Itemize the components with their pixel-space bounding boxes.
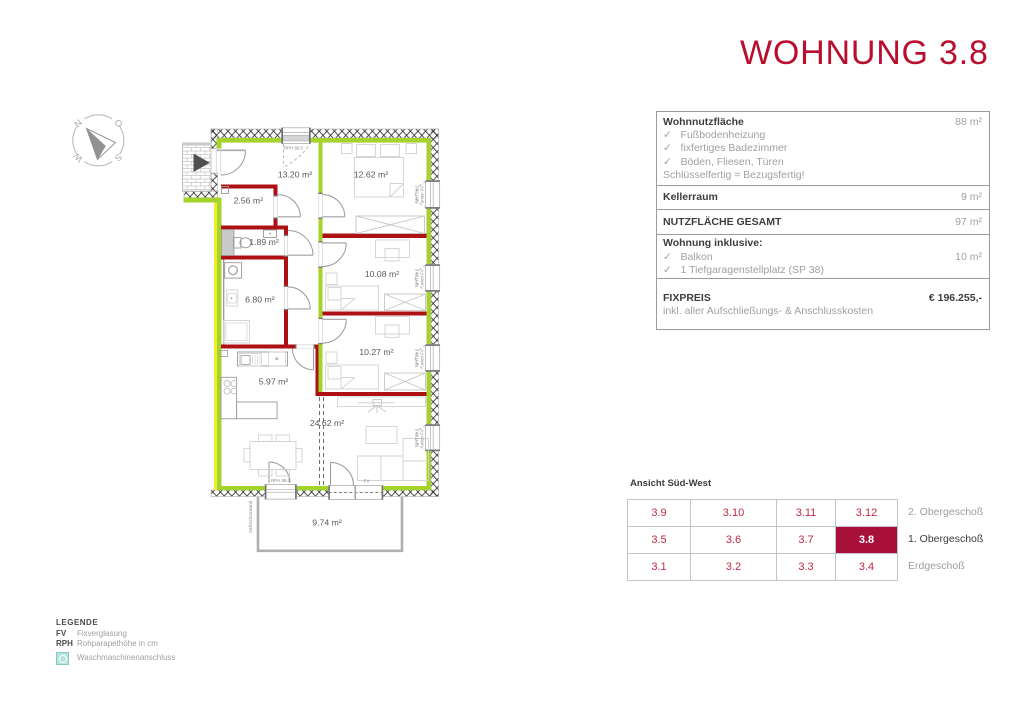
svg-text:RPH 89.5: RPH 89.5 bbox=[284, 146, 304, 151]
svg-text:12.62 m²: 12.62 m² bbox=[354, 170, 388, 180]
svg-text:FV: FV bbox=[364, 479, 370, 484]
svg-text:unten FV: unten FV bbox=[420, 186, 425, 203]
svg-text:9.74 m²: 9.74 m² bbox=[312, 518, 342, 528]
svg-text:24.62 m²: 24.62 m² bbox=[310, 418, 344, 428]
svg-text:10.27 m²: 10.27 m² bbox=[359, 347, 393, 357]
svg-text:unten FV: unten FV bbox=[420, 269, 425, 286]
svg-text:unten FV: unten FV bbox=[420, 429, 425, 446]
svg-text:6.80 m²: 6.80 m² bbox=[245, 294, 275, 304]
svg-text:1.89 m²: 1.89 m² bbox=[249, 237, 279, 247]
svg-text:W: W bbox=[71, 151, 84, 164]
svg-text:unten FV: unten FV bbox=[420, 349, 425, 366]
svg-text:2.56 m²: 2.56 m² bbox=[234, 196, 264, 206]
svg-text:N: N bbox=[72, 117, 84, 129]
svg-text:O: O bbox=[112, 117, 124, 129]
svg-text:Sichtschutzwand: Sichtschutzwand bbox=[248, 500, 253, 533]
svg-text:5.97 m²: 5.97 m² bbox=[259, 376, 289, 386]
svg-text:13.20 m²: 13.20 m² bbox=[278, 170, 312, 180]
svg-text:RPH 89.5: RPH 89.5 bbox=[271, 478, 291, 483]
svg-text:S: S bbox=[113, 152, 124, 163]
svg-text:10.08 m²: 10.08 m² bbox=[365, 269, 399, 279]
